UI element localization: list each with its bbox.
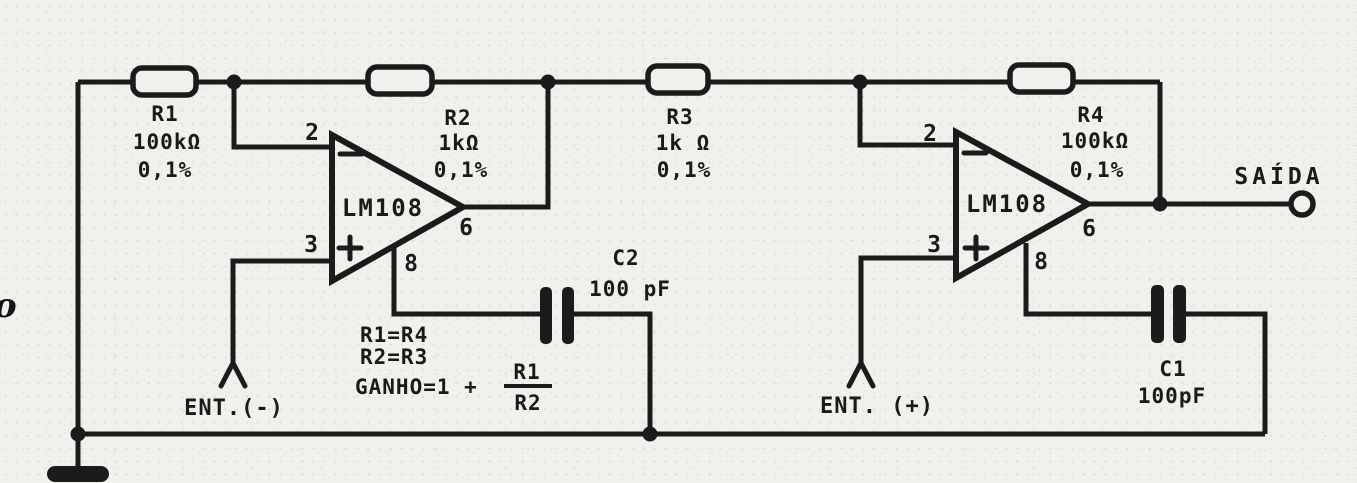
junction-dot — [853, 75, 868, 90]
resistor-r1: R1 100kΩ 0,1% — [133, 68, 201, 182]
equation-line2: R2=R3 — [360, 345, 428, 369]
ground-symbol — [47, 466, 109, 482]
capacitor-plate — [540, 287, 552, 344]
opamp2-pin3-label: 3 — [927, 232, 941, 258]
resistor-tolerance: 0,1% — [1070, 158, 1125, 182]
resistor-tolerance: 0,1% — [434, 158, 489, 182]
opamp1-pin2-label: 2 — [305, 120, 319, 146]
output-label: SAÍDA — [1234, 162, 1323, 190]
capacitor-plate — [1151, 285, 1164, 343]
opamp-part-label: LM108 — [342, 194, 424, 222]
resistor-ref: R1 — [151, 102, 178, 126]
input-positive-terminal: ENT. (+) — [820, 363, 934, 419]
resistor-body — [133, 68, 196, 95]
output-terminal: SAÍDA — [1234, 162, 1323, 215]
opamp2-pin8-label: 8 — [1034, 249, 1048, 275]
opamp-part-label: LM108 — [966, 190, 1048, 218]
resistor-body — [648, 66, 708, 93]
noninverting-input-symbol — [965, 237, 987, 259]
junction-dot — [1153, 197, 1168, 212]
input-arrow-icon — [221, 363, 245, 386]
c2-right-wire — [574, 314, 650, 434]
resistor-tolerance: 0,1% — [657, 158, 712, 182]
junction-dot — [227, 75, 242, 90]
capacitor-c1: C1 100pF — [1138, 285, 1206, 408]
capacitor-ref: C1 — [1159, 357, 1186, 381]
equation-gain-prefix: GANHO=1 + — [355, 375, 478, 399]
equation-line1: R1=R4 — [360, 323, 428, 347]
ground-bar — [47, 466, 109, 482]
opamp1-pin8-label: 8 — [404, 251, 418, 277]
capacitor-value: 100pF — [1138, 384, 1206, 408]
capacitor-plate — [562, 287, 574, 344]
c1-right-wire — [1186, 314, 1265, 434]
resistor-tolerance: 0,1% — [138, 158, 193, 182]
capacitor-plate — [1173, 285, 1186, 343]
capacitor-ref: C2 — [612, 246, 639, 270]
stray-handwriting-mark: o — [0, 286, 17, 326]
junction-dot — [643, 427, 658, 442]
resistor-body — [1010, 65, 1073, 92]
opamp2-pin6-label: 6 — [1082, 216, 1096, 242]
junction-dot — [71, 427, 86, 442]
input-arrow-icon — [849, 363, 873, 386]
output-terminal-circle — [1291, 193, 1313, 215]
opamp2-pin2-label: 2 — [923, 121, 937, 147]
fraction-denominator: R2 — [514, 391, 541, 415]
opamp2-inverting-input-wire — [860, 82, 956, 145]
resistor-value: 1k Ω — [656, 131, 711, 155]
resistor-ref: R2 — [444, 106, 471, 130]
resistor-ref: R4 — [1077, 103, 1104, 127]
opamp1-pin3-label: 3 — [304, 232, 318, 258]
schematic-scan: R1 100kΩ 0,1% R2 1kΩ 0,1% R3 1k Ω 0,1% R… — [0, 0, 1357, 483]
resistor-r3: R3 1k Ω 0,1% — [648, 66, 711, 182]
resistor-ref: R3 — [666, 105, 693, 129]
input-positive-label: ENT. (+) — [820, 394, 934, 419]
noninverting-input-symbol — [339, 237, 361, 259]
junction-dot — [541, 75, 556, 90]
resistor-value: 1kΩ — [439, 131, 480, 155]
capacitor-value: 100 pF — [589, 277, 671, 301]
gain-equations: R1=R4 R2=R3 GANHO=1 + R1 R2 — [355, 323, 552, 415]
input-negative-terminal: ENT.(-) — [184, 363, 284, 421]
circuit-diagram: R1 100kΩ 0,1% R2 1kΩ 0,1% R3 1k Ω 0,1% R… — [0, 0, 1357, 483]
input-negative-label: ENT.(-) — [184, 396, 284, 421]
fraction-numerator: R1 — [513, 360, 540, 384]
resistor-body — [368, 67, 432, 94]
opamp2-noninverting-input-wire — [861, 258, 956, 364]
resistor-value: 100kΩ — [133, 130, 201, 154]
opamp1-pin6-label: 6 — [459, 215, 473, 241]
resistor-value: 100kΩ — [1061, 129, 1129, 153]
opamp1-noninverting-input-wire — [233, 261, 332, 364]
